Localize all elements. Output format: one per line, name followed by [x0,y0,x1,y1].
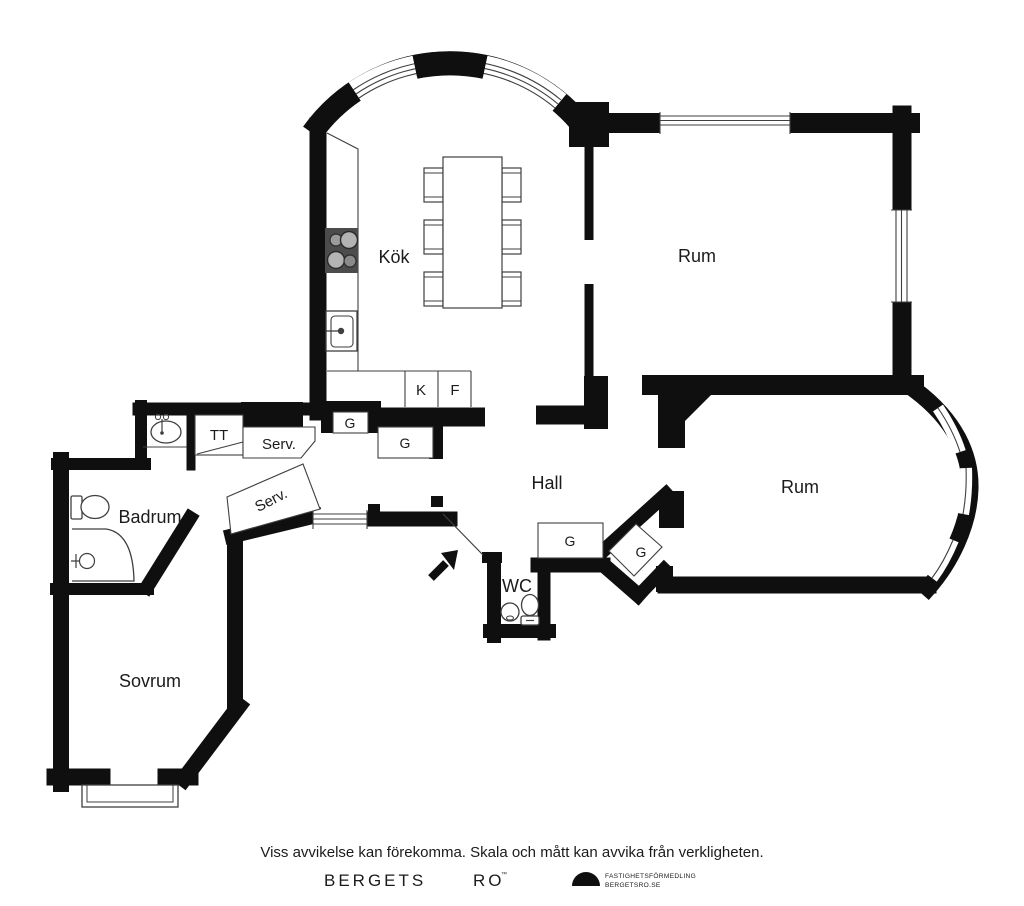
window-kitchen-arc [353,60,561,108]
window-corridor [313,509,367,530]
kitchen-fixtures [325,133,521,407]
door-swing-line [443,514,483,555]
toilet-icon [71,496,109,520]
entrance-arrow-icon [431,550,458,578]
room-label-bathroom: Badrum [118,507,181,527]
agency-line1: FASTIGHETSFÖRMEDLING [605,872,696,880]
closet-label-serv-top: Serv. [262,436,296,453]
window-room-top [660,111,790,135]
brand-logo-bergets: BERGETS [324,871,426,890]
floor-plan-page: Kök Rum Rum Hall WC Badrum Sovrum TT Ser… [0,0,1024,906]
table-top [443,157,502,308]
room-labels: Kök Rum Rum Hall WC Badrum Sovrum TT Ser… [118,246,819,691]
sink-icon [326,311,357,351]
closet-label-freezer: F [450,382,459,399]
room-label-wc: WC [502,576,532,596]
floor-plan: Kök Rum Rum Hall WC Badrum Sovrum TT Ser… [0,0,1024,906]
wc-toilet-icon [521,595,539,626]
footer-disclaimer: Viss avvikelse kan förekomma. Skala och … [260,844,763,861]
brand-logo-ro: RO [473,871,505,890]
closet-label-fridge: K [416,382,426,399]
wc-fixtures [501,595,539,626]
stove-icon [325,228,358,273]
wc-washbasin-icon [501,603,519,621]
footer: Viss avvikelse kan förekomma. Skala och … [260,844,763,890]
agency-logo-icon [572,872,600,886]
room-label-bedroom: Sovrum [119,671,181,691]
room-label-room-right: Rum [781,477,819,497]
brand-trademark: ™ [501,871,507,878]
closet-label-g1: G [345,415,356,431]
window-bedroom [82,785,178,807]
bathtub-icon [71,529,134,581]
closet-label-g4: G [636,544,647,560]
closet-label-g2: G [400,435,411,451]
closet-label-tt: TT [210,427,228,444]
window-room-right-wall [890,210,913,302]
room-label-hall: Hall [531,473,562,493]
agency-line2: BERGETSRO.SE [605,882,661,889]
dining-table [424,157,521,308]
room-label-kitchen: Kök [378,247,410,267]
room-label-room-top: Rum [678,246,716,266]
closet-label-g3: G [565,533,576,549]
washbasin-icon [151,414,181,443]
